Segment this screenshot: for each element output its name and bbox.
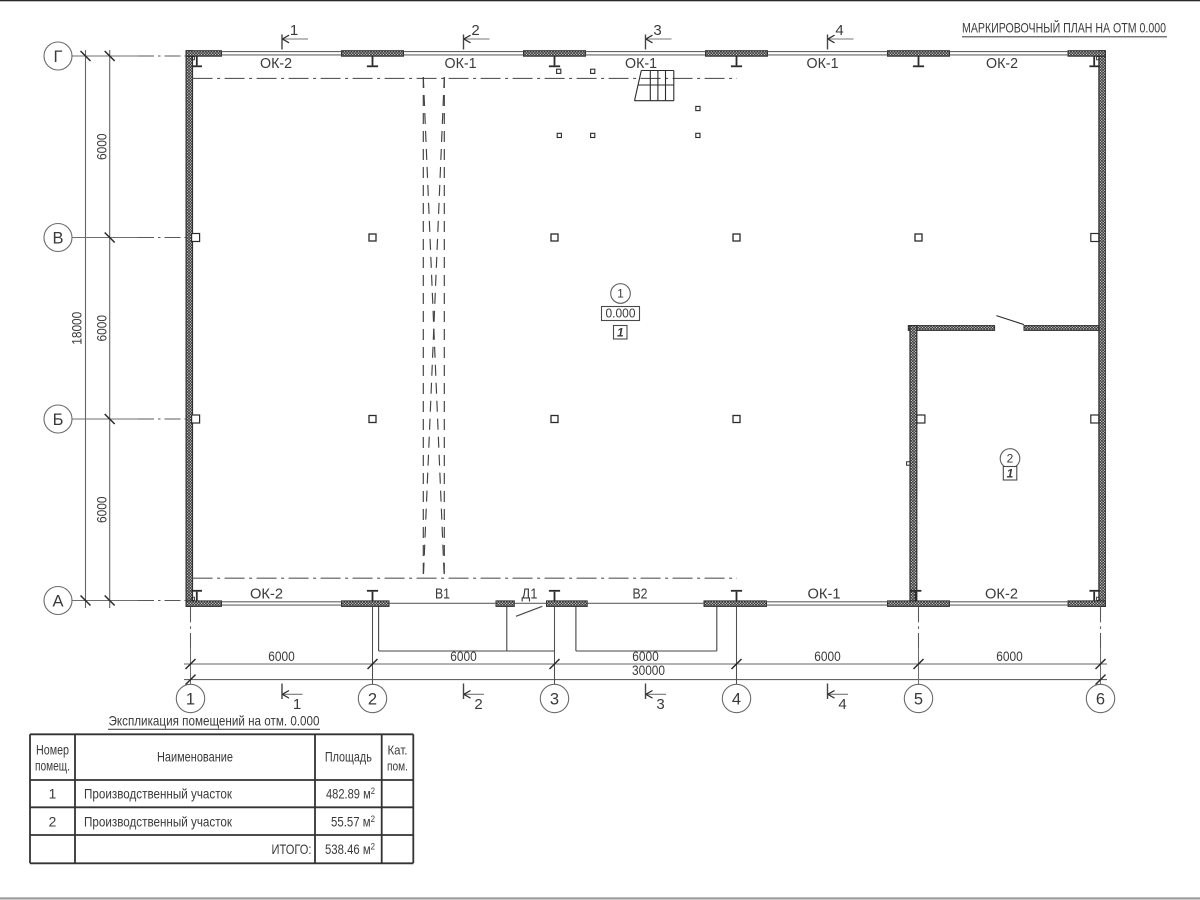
svg-text:ОК-1: ОК-1 <box>445 56 477 72</box>
svg-text:2: 2 <box>471 22 479 39</box>
svg-text:ОК-2: ОК-2 <box>986 56 1018 72</box>
svg-text:30000: 30000 <box>632 663 665 678</box>
svg-text:Экспликация помещений на отм.: Экспликация помещений на отм. 0.000 <box>109 714 320 729</box>
svg-text:6000: 6000 <box>996 649 1023 664</box>
svg-text:ОК-1: ОК-1 <box>625 56 657 72</box>
svg-text:Д1: Д1 <box>522 587 538 603</box>
svg-text:А: А <box>52 592 63 610</box>
svg-text:2: 2 <box>474 696 482 713</box>
svg-text:ОК-2: ОК-2 <box>250 587 283 603</box>
svg-text:Номер: Номер <box>36 743 69 758</box>
svg-text:4: 4 <box>835 22 843 39</box>
svg-text:Производственный участок: Производственный участок <box>84 787 233 802</box>
svg-text:Площадь: Площадь <box>325 750 372 765</box>
svg-text:пом.: пом. <box>387 759 408 774</box>
svg-text:482.89 м2: 482.89 м2 <box>326 786 375 802</box>
svg-text:В1: В1 <box>435 587 450 603</box>
svg-text:6: 6 <box>1096 690 1105 708</box>
svg-text:4: 4 <box>838 696 846 713</box>
svg-text:В2: В2 <box>633 587 648 603</box>
svg-text:ОК-2: ОК-2 <box>985 587 1018 603</box>
svg-text:18000: 18000 <box>70 312 85 345</box>
svg-text:6000: 6000 <box>632 649 659 664</box>
svg-text:помещ.: помещ. <box>35 759 70 774</box>
svg-text:1: 1 <box>290 22 298 39</box>
svg-text:ОК-1: ОК-1 <box>807 56 839 72</box>
svg-text:538.46 м2: 538.46 м2 <box>325 842 375 858</box>
svg-text:6000: 6000 <box>94 315 109 342</box>
svg-text:ОК-2: ОК-2 <box>260 56 292 72</box>
svg-text:1: 1 <box>293 696 301 713</box>
svg-text:В: В <box>52 229 63 247</box>
svg-text:1: 1 <box>617 287 624 301</box>
svg-text:3: 3 <box>550 690 559 708</box>
svg-text:1: 1 <box>1007 467 1014 481</box>
svg-text:Кат.: Кат. <box>388 743 408 758</box>
svg-text:6000: 6000 <box>814 649 841 664</box>
svg-text:1: 1 <box>186 690 195 708</box>
svg-text:2: 2 <box>368 690 377 708</box>
svg-text:МАРКИРОВОЧНЫЙ ПЛАН НА ОТМ 0.00: МАРКИРОВОЧНЫЙ ПЛАН НА ОТМ 0.000 <box>962 19 1166 36</box>
svg-text:5: 5 <box>914 690 923 708</box>
svg-text:ИТОГО:: ИТОГО: <box>272 842 312 857</box>
svg-text:4: 4 <box>732 690 741 708</box>
svg-text:2: 2 <box>1007 452 1014 466</box>
svg-text:Производственный участок: Производственный участок <box>84 814 233 829</box>
svg-text:0.000: 0.000 <box>606 307 636 321</box>
svg-text:Наименование: Наименование <box>157 750 233 765</box>
svg-text:55.57 м2: 55.57 м2 <box>331 814 375 830</box>
svg-text:1: 1 <box>617 326 624 340</box>
svg-text:3: 3 <box>656 696 664 713</box>
svg-text:6000: 6000 <box>450 649 477 664</box>
svg-text:2: 2 <box>49 814 57 829</box>
svg-text:3: 3 <box>653 22 661 39</box>
svg-text:Г: Г <box>54 48 63 66</box>
svg-text:1: 1 <box>49 787 57 802</box>
svg-text:6000: 6000 <box>94 497 109 524</box>
svg-text:Б: Б <box>53 411 64 429</box>
svg-text:ОК-1: ОК-1 <box>808 587 841 603</box>
svg-text:6000: 6000 <box>268 649 295 664</box>
svg-text:6000: 6000 <box>94 134 109 161</box>
